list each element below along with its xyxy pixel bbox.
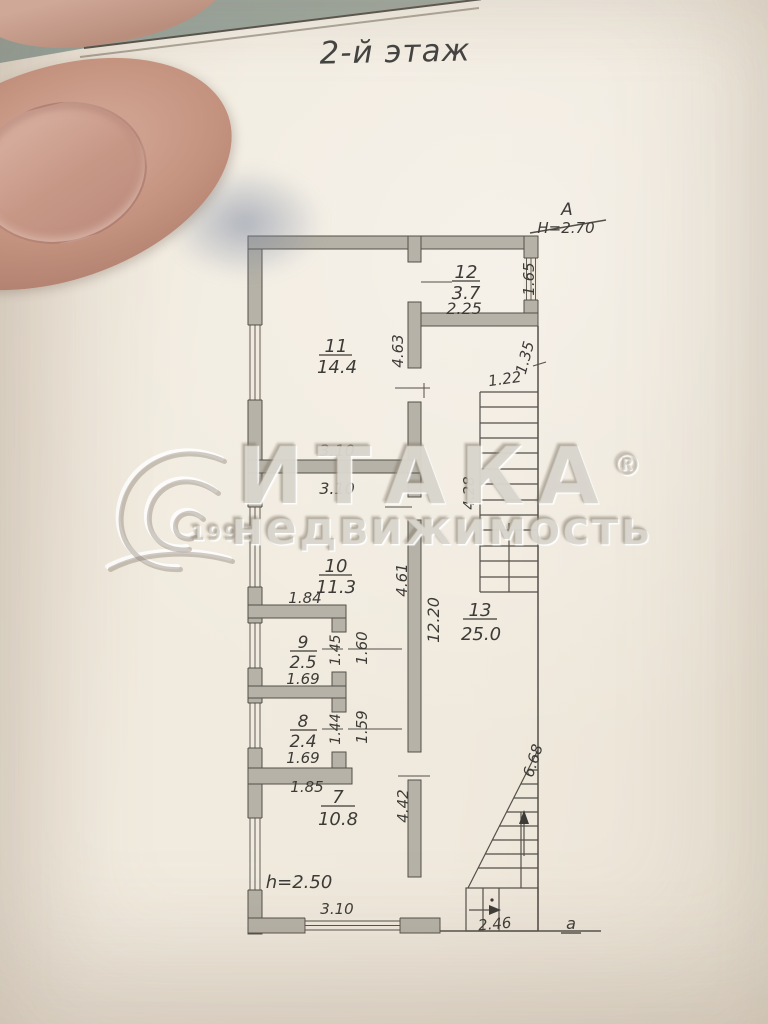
itaka-wave-logo (105, 438, 240, 583)
room-11-area: 14.4 (317, 357, 357, 378)
watermark-subtitle: недвижимость (230, 504, 651, 552)
dim-stair2-length: 6.68 (519, 742, 546, 779)
dim-stair-offset: 1.35 (512, 339, 538, 376)
dim-room9-width: 1.69 (286, 670, 319, 688)
axis-top-height: Н=2.70 (537, 219, 594, 237)
dim-room8-width: 1.69 (286, 749, 319, 767)
dim-room8-outer: 1.59 (353, 710, 371, 743)
room-12-number: 12 (455, 262, 478, 283)
ceiling-height-note: h=2.50 (266, 872, 333, 893)
dim-room9-outer: 1.60 (353, 631, 371, 664)
room-11-number: 11 (325, 336, 348, 357)
axis-top-letter: А (560, 200, 573, 220)
labels: А Н=2.70 1.65 12 3.7 2.25 11 14.4 4.63 3… (266, 200, 595, 934)
dim-room12-window: 1.65 (520, 262, 538, 295)
room-13-number: 13 (469, 600, 492, 621)
dim-hall-length: 12.20 (424, 597, 443, 643)
dim-room11-right: 4.63 (389, 334, 407, 367)
floorplan-drawing: А Н=2.70 1.65 12 3.7 2.25 11 14.4 4.63 3… (225, 185, 625, 960)
registered-mark-icon: ® (612, 448, 642, 483)
floor-title: 2-й этаж (305, 32, 486, 72)
room-13-area: 25.0 (461, 624, 501, 645)
photographed-floorplan-page: 2-й этаж (0, 0, 768, 1024)
room-7-area: 10.8 (318, 809, 358, 830)
thumb-nail (0, 84, 162, 261)
dim-room7-top: 1.85 (290, 778, 323, 796)
room-9-number: 9 (298, 633, 309, 653)
dim-stair2-width: 2.46 (477, 914, 512, 935)
dim-room7-right: 4.42 (394, 789, 412, 822)
dim-room8-inner: 1.44 (328, 713, 344, 744)
axis-bottom-letter: а (566, 914, 576, 933)
dim-room9-inner: 1.45 (328, 634, 344, 665)
dim-room10-right: 4.61 (393, 563, 411, 596)
room-10-number: 10 (325, 556, 348, 577)
dim-room10-left: 1.84 (288, 589, 321, 607)
room-8-number: 8 (298, 712, 309, 732)
room-10-area: 11.3 (316, 577, 356, 598)
room-7-number: 7 (332, 787, 344, 808)
dim-room7-width: 3.10 (320, 900, 353, 918)
dim-room12-width: 2.25 (446, 299, 482, 318)
